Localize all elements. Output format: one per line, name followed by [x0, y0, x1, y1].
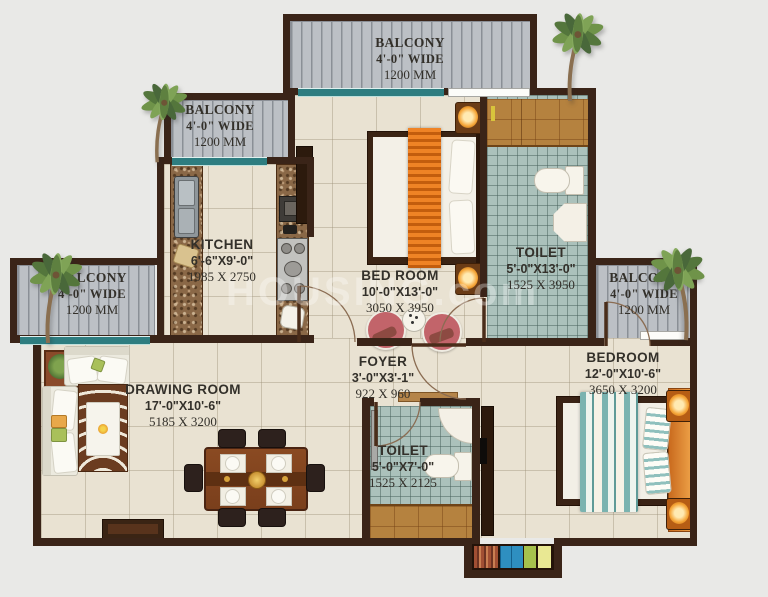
room-dims-mm: 1525 X 3950	[491, 278, 591, 293]
room-dims-mm: 3650 X 3200	[548, 383, 698, 398]
room-name: BALCONY	[330, 35, 490, 52]
room-name: BEDROOM	[548, 350, 698, 367]
room-dims-mm: 922 X 960	[323, 387, 443, 402]
label-foyer: FOYER 3'-0"X3'-1" 922 X 960	[323, 354, 443, 401]
room-dims-mm: 1985 X 2750	[167, 270, 277, 285]
room-name: KITCHEN	[167, 237, 277, 254]
room-dims-ft: 10'-0"X13'-0"	[325, 285, 475, 301]
label-bedroom-right: BEDROOM 12'-0"X10'-6" 3650 X 3200	[548, 350, 698, 397]
label-balcony-top: BALCONY 4'-0" WIDE 1200 MM	[330, 35, 490, 82]
room-name: FOYER	[323, 354, 443, 371]
room-dims-mm: 5185 X 3200	[95, 415, 271, 430]
room-dims-ft: 12'-0"X10'-6"	[548, 367, 698, 383]
floor-plan: HOUSING.com BALCONY 4'-0" WIDE 1200 MM B…	[0, 0, 768, 597]
door-arc	[376, 402, 420, 446]
room-dims-ft: 3'-0"X3'-1"	[323, 371, 443, 387]
room-dims-ft: 5'-0"X13'-0"	[491, 262, 591, 278]
palm-tree	[533, 6, 611, 106]
room-name: TOILET	[491, 245, 591, 262]
label-kitchen: KITCHEN 6'-6"X9'-0" 1985 X 2750	[167, 237, 277, 284]
room-dims-ft: 17'-0"X10'-6"	[95, 399, 271, 415]
room-dims-ft: 5'-0"X7'-0"	[353, 460, 453, 476]
room-name: BED ROOM	[325, 268, 475, 285]
room-name: TOILET	[353, 443, 453, 460]
room-dims-mm: 3050 X 3950	[325, 301, 475, 316]
label-bed-room: BED ROOM 10'-0"X13'-0" 3050 X 3950	[325, 268, 475, 315]
room-dims-mm: 1200 MM	[330, 68, 490, 83]
room-dims-ft: 4'-0" WIDE	[330, 52, 490, 68]
label-toilet-bottom: TOILET 5'-0"X7'-0" 1525 X 2125	[353, 443, 453, 490]
palm-tree	[643, 240, 725, 346]
room-name: DRAWING ROOM	[95, 382, 271, 399]
label-toilet-top: TOILET 5'-0"X13'-0" 1525 X 3950	[491, 245, 591, 292]
palm-tree	[10, 246, 90, 348]
palm-tree	[124, 76, 194, 168]
room-dims-ft: 6'-6"X9'-0"	[167, 254, 277, 270]
label-drawing-room: DRAWING ROOM 17'-0"X10'-6" 5185 X 3200	[95, 382, 271, 429]
room-dims-mm: 1525 X 2125	[353, 476, 453, 491]
